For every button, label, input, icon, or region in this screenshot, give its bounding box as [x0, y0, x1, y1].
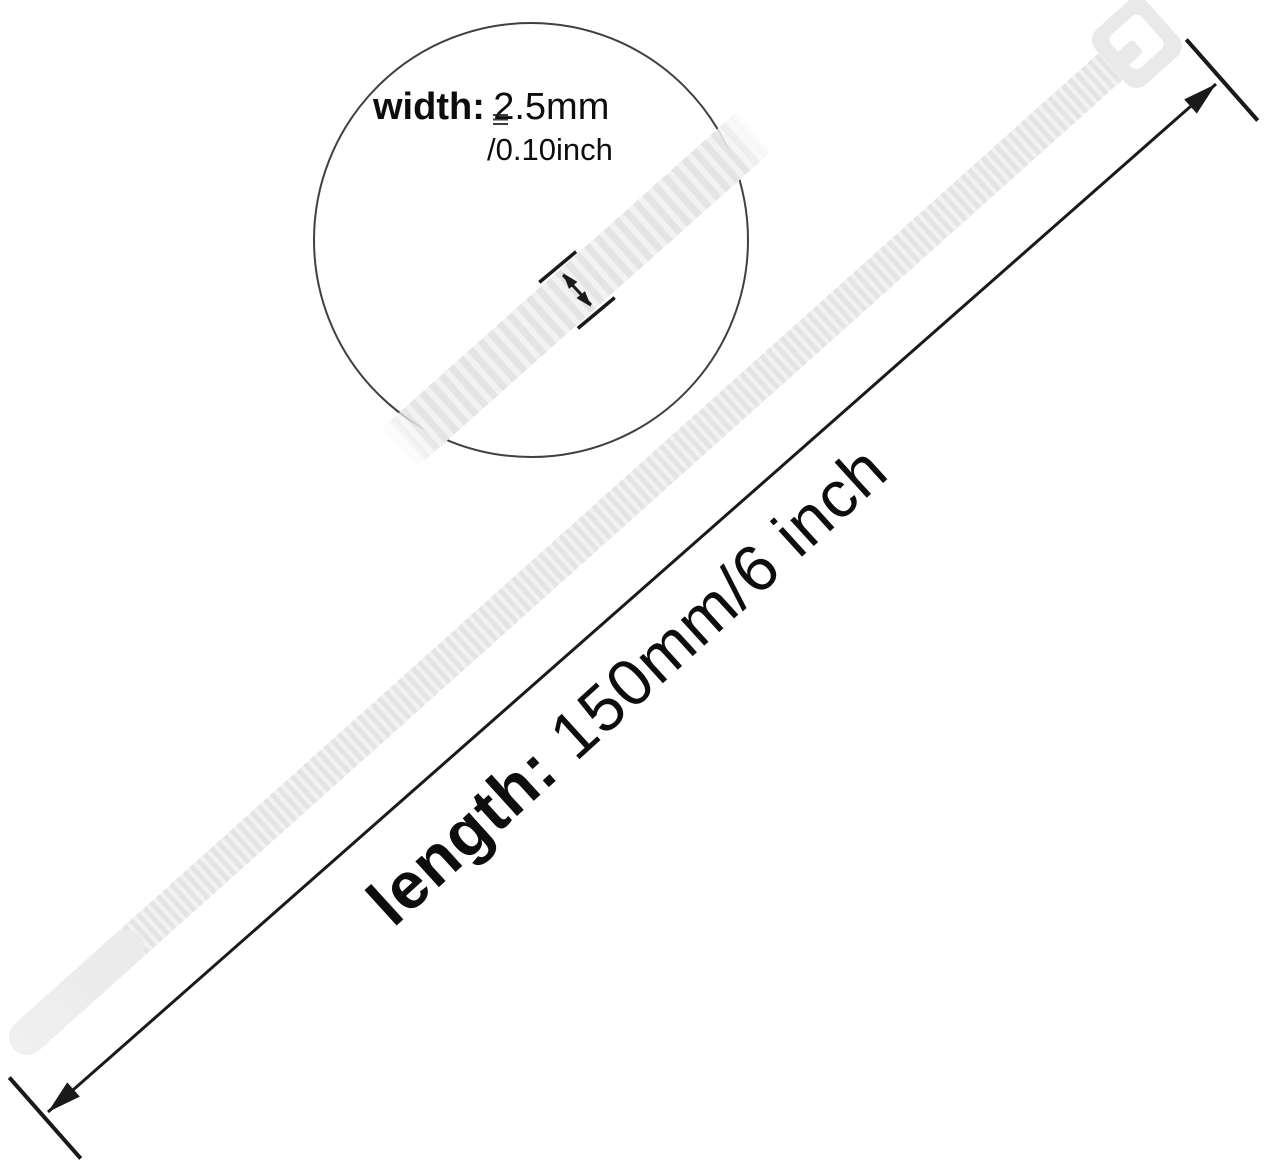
product-dimension-diagram: width:2.5mm /0.10inch length:150mm/6 inc…: [0, 0, 1270, 1165]
print-artifact: [493, 114, 508, 125]
width-label: width:2.5mm: [373, 88, 609, 128]
width-label-term: width:: [373, 86, 485, 128]
dimension-annotations: [0, 0, 1270, 1165]
length-dimension-line: [48, 84, 1216, 1112]
width-label-value: 2.5mm: [493, 86, 609, 128]
width-label-secondary: /0.10inch: [487, 134, 613, 167]
